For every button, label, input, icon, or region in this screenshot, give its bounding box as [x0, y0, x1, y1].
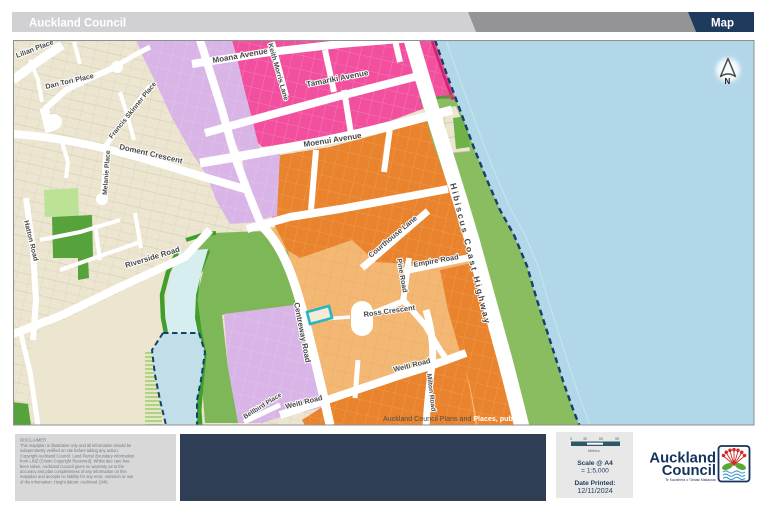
svg-text:= 1:5,000: = 1:5,000	[581, 468, 609, 475]
svg-text:90: 90	[615, 437, 619, 441]
svg-text:0: 0	[570, 437, 572, 441]
svg-text:DISCLAIMER: DISCLAIMER	[20, 438, 46, 443]
svg-text:Council: Council	[662, 463, 716, 479]
svg-text:Auckland Council: Auckland Council	[29, 18, 126, 30]
svg-text:12/11/2024: 12/11/2024	[577, 486, 612, 495]
svg-text:Meters: Meters	[588, 449, 600, 453]
svg-text:Auckland Council Plans and Pla: Auckland Council Plans and Places, pub	[383, 415, 513, 423]
svg-text:30: 30	[583, 437, 587, 441]
svg-text:N: N	[725, 77, 731, 86]
svg-text:of the information. Height dat: of the information. Height datum: Auckla…	[20, 479, 109, 484]
svg-text:Scale @ A4: Scale @ A4	[577, 460, 613, 467]
svg-text:Te Kaunihera o Tāmaki Makaurau: Te Kaunihera o Tāmaki Makaurau	[665, 478, 716, 482]
svg-text:Map: Map	[711, 18, 734, 30]
svg-text:60: 60	[599, 437, 603, 441]
